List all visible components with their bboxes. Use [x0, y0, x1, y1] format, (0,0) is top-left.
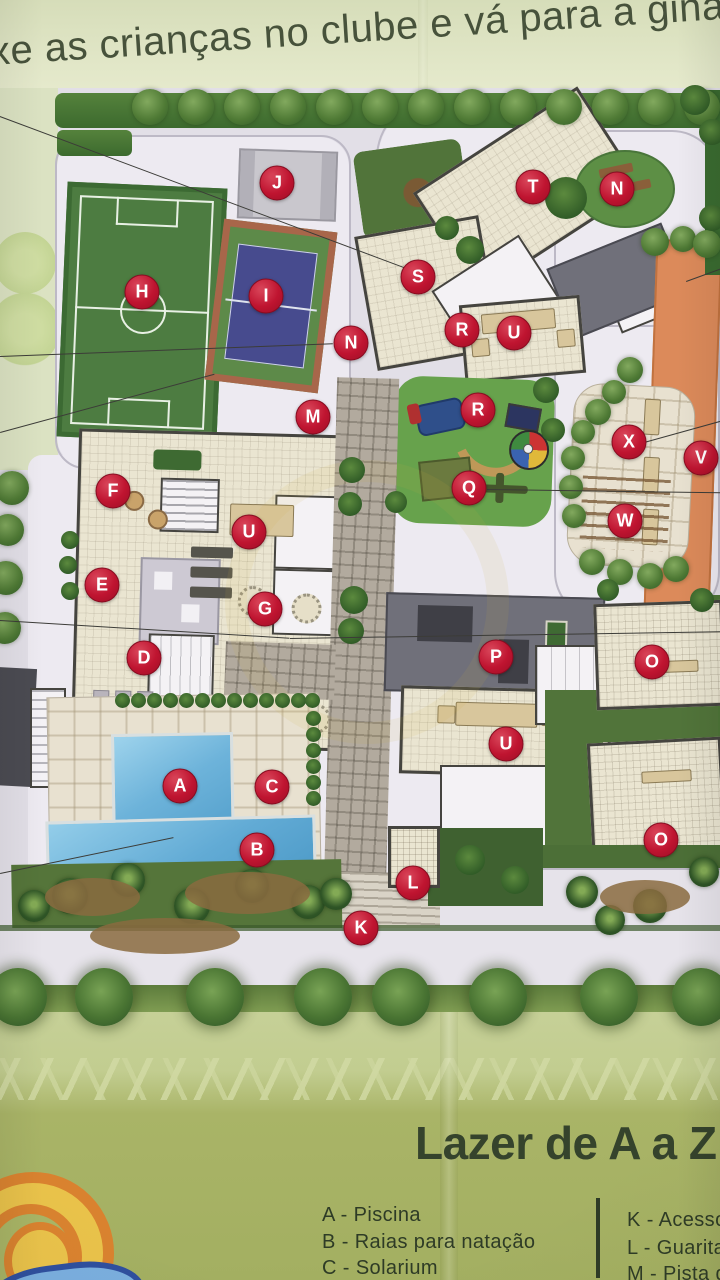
legend-item-a: A - Piscina: [322, 1204, 421, 1227]
tree-icon: [115, 693, 130, 708]
tree-icon: [617, 357, 643, 383]
sofa: [455, 702, 538, 728]
tree-icon: [454, 89, 490, 125]
tree-icon: [592, 89, 628, 125]
tree-icon: [306, 759, 321, 774]
tree-icon: [602, 380, 626, 404]
tree-icon: [663, 556, 689, 582]
pergola-bench: [643, 399, 661, 436]
carousel-hub: [523, 444, 533, 454]
tree-icon: [227, 693, 242, 708]
tree-icon: [178, 89, 214, 125]
tree-icon: [340, 586, 368, 614]
tree-icon: [597, 579, 619, 601]
tree-icon: [306, 727, 321, 742]
planter: [153, 449, 202, 470]
map-marker-q: Q: [452, 471, 487, 506]
tree-icon: [163, 693, 178, 708]
tree-icon: [275, 693, 290, 708]
tree-icon: [316, 89, 352, 125]
tree-icon: [545, 177, 587, 219]
armchair: [556, 328, 576, 348]
map-marker-m: M: [296, 400, 331, 435]
skylight: [154, 571, 172, 589]
map-marker-o: O: [644, 823, 679, 858]
tree-icon: [59, 556, 77, 574]
bench: [641, 769, 692, 784]
map-marker-l: L: [396, 866, 431, 901]
map-marker-d: D: [127, 641, 162, 676]
tree-icon: [670, 226, 696, 252]
map-marker-g: G: [248, 592, 283, 627]
tree-icon: [270, 89, 306, 125]
map-marker-w: W: [608, 504, 643, 539]
legend-divider: [596, 1198, 600, 1278]
tree-icon: [186, 968, 244, 1026]
tree-icon: [637, 563, 663, 589]
map-marker-p: P: [479, 640, 514, 675]
tree-icon: [306, 743, 321, 758]
tree-icon: [641, 228, 669, 256]
tree-icon: [224, 89, 260, 125]
tree-icon: [75, 968, 133, 1026]
tree-icon: [306, 711, 321, 726]
palm-tree-icon: [566, 876, 598, 908]
tree-icon: [699, 119, 720, 145]
garden-gate: [428, 828, 543, 906]
map-marker-v: V: [684, 441, 719, 476]
palm-tree-icon: [689, 857, 719, 887]
tree-icon: [372, 968, 430, 1026]
map-marker-j: J: [260, 166, 295, 201]
tree-icon: [501, 866, 529, 894]
tree-icon: [579, 549, 605, 575]
tree-icon: [533, 377, 559, 403]
legend-item-c: C - Solarium: [322, 1257, 438, 1280]
tree-icon: [131, 693, 146, 708]
map-marker-n: N: [600, 172, 635, 207]
map-marker-r: R: [445, 313, 480, 348]
tree-icon: [147, 693, 162, 708]
tree-icon: [306, 791, 321, 806]
legend-item-b: B - Raias para natação: [322, 1231, 535, 1254]
map-marker-u: U: [497, 316, 532, 351]
tree-icon: [571, 420, 595, 444]
map-marker-h: H: [125, 275, 160, 310]
tree-icon: [561, 446, 585, 470]
tree-icon: [294, 968, 352, 1026]
mulch-patch: [185, 872, 310, 914]
mulch-patch: [90, 918, 240, 954]
tree-icon: [338, 492, 362, 516]
tree-icon: [179, 693, 194, 708]
map-marker-a: A: [163, 769, 198, 804]
map-marker-u: U: [232, 515, 267, 550]
map-marker-s: S: [401, 260, 436, 295]
tree-icon: [362, 89, 398, 125]
tree-icon: [456, 236, 484, 264]
tree-icon: [500, 89, 536, 125]
brochure-photo: xe as crianças no clube e vá para a giná…: [0, 0, 720, 1280]
tree-icon: [690, 588, 714, 612]
fold-crease: [418, 0, 428, 95]
map-marker-f: F: [96, 474, 131, 509]
toy-plane-wing: [495, 473, 504, 503]
tree-icon: [559, 475, 583, 499]
map-marker-b: B: [240, 833, 275, 868]
tree-icon: [638, 89, 674, 125]
skylight: [181, 604, 199, 622]
tree-icon: [469, 968, 527, 1026]
tree-icon: [455, 845, 485, 875]
map-marker-x: X: [612, 425, 647, 460]
tree-icon: [243, 693, 258, 708]
tree-icon: [435, 216, 459, 240]
map-marker-u: U: [489, 727, 524, 762]
field-goal-box: [107, 398, 170, 429]
tree-icon: [195, 693, 210, 708]
tree-icon: [546, 89, 582, 125]
tree-icon: [580, 968, 638, 1026]
map-marker-k: K: [344, 911, 379, 946]
tree-icon: [132, 89, 168, 125]
mulch-patch: [600, 880, 690, 914]
stairwell: [160, 478, 220, 534]
tree-icon: [306, 775, 321, 790]
sun-wave-logo: [0, 1168, 142, 1280]
tree-icon: [338, 618, 364, 644]
soccer-field: [57, 182, 228, 444]
map-marker-n: N: [334, 326, 369, 361]
map-marker-o: O: [635, 645, 670, 680]
tree-icon: [385, 491, 407, 513]
tree-icon: [562, 504, 586, 528]
map-marker-i: I: [249, 279, 284, 314]
map-marker-c: C: [255, 770, 290, 805]
tree-icon: [61, 582, 79, 600]
leaf-border-pattern: [0, 1058, 720, 1100]
tree-icon: [211, 693, 226, 708]
field-goal-box: [116, 197, 179, 228]
tree-icon: [61, 531, 79, 549]
legend-item-k: K - Acesso c: [627, 1209, 720, 1232]
map-marker-t: T: [516, 170, 551, 205]
legend-item-l: L - Guarita c: [627, 1237, 720, 1260]
tree-icon: [259, 693, 274, 708]
tree-icon: [305, 693, 320, 708]
tree-icon: [680, 85, 710, 115]
court-j-stripe: [320, 153, 336, 219]
gym-machine: [191, 546, 233, 558]
map-marker-e: E: [85, 568, 120, 603]
legend-title: Lazer de A a Z pa: [415, 1116, 720, 1170]
palm-tree-icon: [320, 878, 352, 910]
tree-icon: [699, 205, 720, 231]
tree-icon: [291, 693, 306, 708]
tree-icon: [408, 89, 444, 125]
mulch-patch: [45, 878, 140, 916]
map-marker-r: R: [461, 393, 496, 428]
tree-icon: [541, 418, 565, 442]
tree-icon: [693, 230, 720, 258]
tree-icon: [339, 457, 365, 483]
legend-item-m: M - Pista de: [627, 1263, 720, 1280]
